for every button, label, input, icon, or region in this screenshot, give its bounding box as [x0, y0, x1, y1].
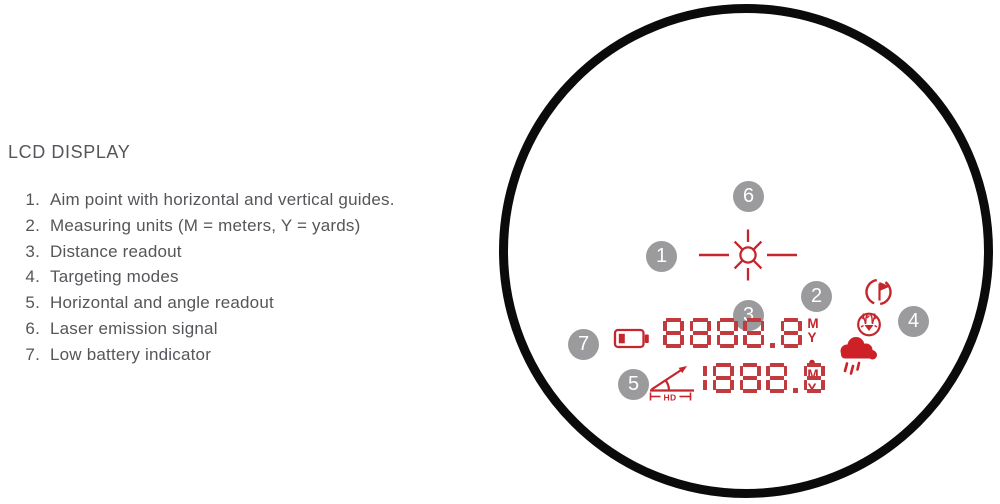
list-item-number: 6. — [8, 316, 50, 342]
callout-4-targeting-modes: 4 — [898, 306, 929, 337]
callout-1-aim-point: 1 — [646, 241, 677, 272]
eyepiece-ring — [499, 4, 993, 498]
lcd-display-manual-page: LCD DISPLAY 1. Aim point with horizontal… — [0, 0, 1000, 504]
legend-list: 1. Aim point with horizontal and vertica… — [8, 187, 478, 368]
angle-readout-digits — [698, 363, 830, 393]
callout-2-measuring-units: 2 — [801, 281, 832, 312]
list-item-text: Targeting modes — [50, 264, 179, 290]
list-item: 7. Low battery indicator — [8, 342, 478, 368]
callout-5-angle-readout: 5 — [618, 369, 649, 400]
list-item-text: Low battery indicator — [50, 342, 211, 368]
list-item-number: 2. — [8, 213, 50, 239]
list-item: 3. Distance readout — [8, 239, 478, 265]
list-item-number: 1. — [8, 187, 50, 213]
list-item-text: Laser emission signal — [50, 316, 218, 342]
callout-7-low-battery: 7 — [568, 329, 599, 360]
list-item-number: 7. — [8, 342, 50, 368]
list-item-text: Horizontal and angle readout — [50, 290, 274, 316]
list-item-text: Measuring units (M = meters, Y = yards) — [50, 213, 360, 239]
list-item-text: Aim point with horizontal and vertical g… — [50, 187, 395, 213]
list-item: 2. Measuring units (M = meters, Y = yard… — [8, 213, 478, 239]
list-item: 5. Horizontal and angle readout — [8, 290, 478, 316]
callout-6-laser-emission: 6 — [733, 181, 764, 212]
distance-readout-digits — [663, 318, 807, 348]
list-item: 6. Laser emission signal — [8, 316, 478, 342]
list-item-number: 5. — [8, 290, 50, 316]
list-item-number: 3. — [8, 239, 50, 265]
description-panel: LCD DISPLAY 1. Aim point with horizontal… — [8, 142, 478, 368]
list-item: 1. Aim point with horizontal and vertica… — [8, 187, 478, 213]
list-item-text: Distance readout — [50, 239, 182, 265]
list-item: 4. Targeting modes — [8, 264, 478, 290]
list-item-number: 4. — [8, 264, 50, 290]
page-title: LCD DISPLAY — [8, 142, 478, 163]
